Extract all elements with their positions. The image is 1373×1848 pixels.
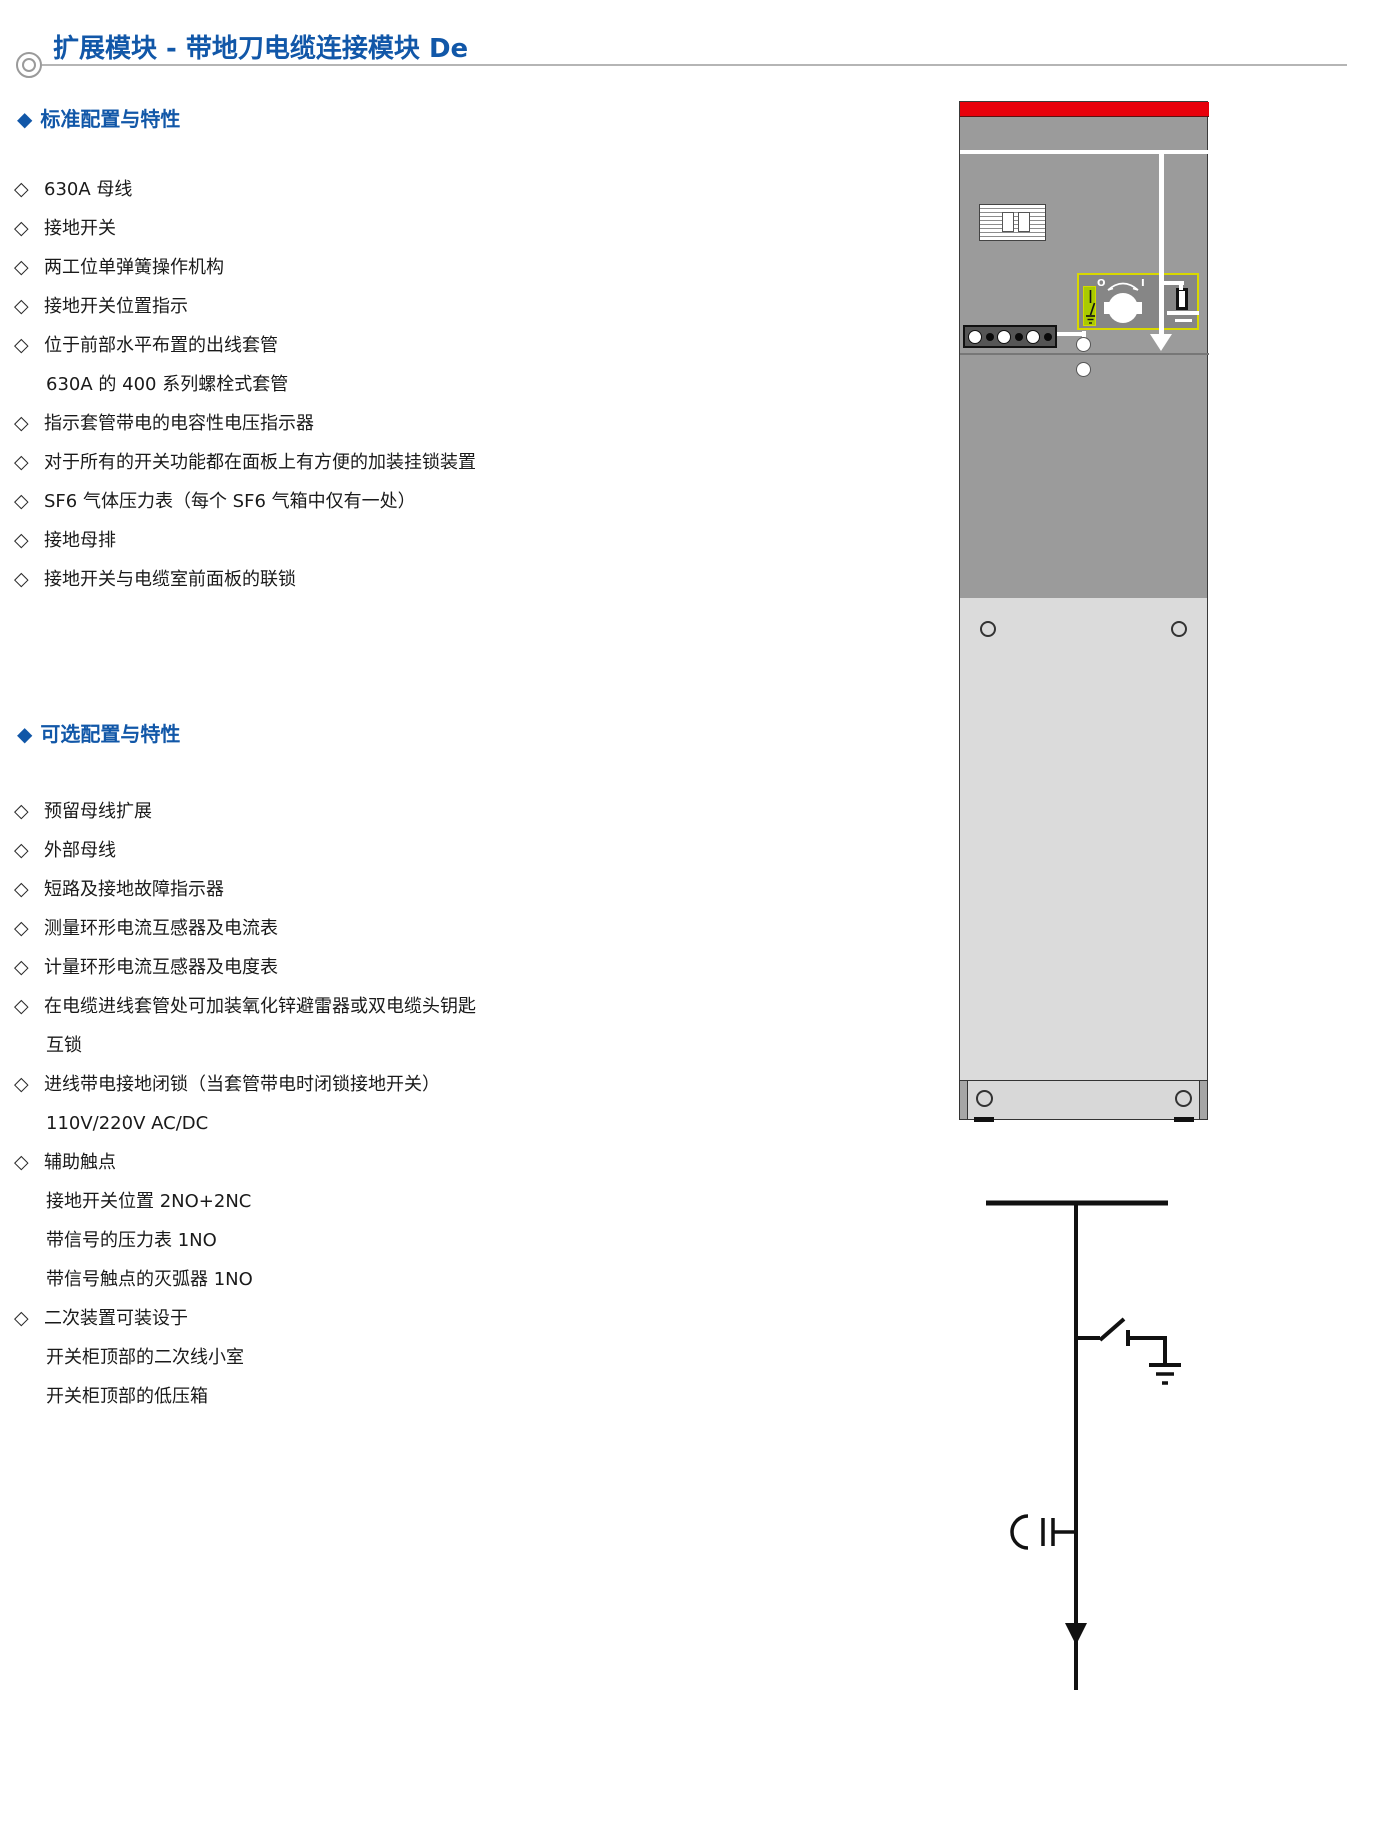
list-item-text: 接地开关位置指示: [44, 296, 188, 317]
list-item-continuation: 带信号的压力表 1NO: [0, 1221, 476, 1260]
list-item-text: 外部母线: [44, 840, 116, 861]
diamond-bullet-icon: ◇: [14, 792, 29, 831]
plinth-hole: [976, 1090, 993, 1107]
list-item-text: 带信号触点的灭弧器 1NO: [46, 1269, 253, 1290]
list-item-continuation: 开关柜顶部的二次线小室: [0, 1338, 476, 1377]
list-item: ◇位于前部水平布置的出线套管: [0, 326, 476, 365]
list-item-text: 在电缆进线套管处可加装氧化锌避雷器或双电缆头钥匙: [44, 996, 476, 1017]
nameplate-diagram-box: [1018, 212, 1030, 232]
section-heading-optional: ◆可选配置与特性: [17, 718, 180, 747]
cabinet-red-band: [960, 102, 1209, 117]
rotation-arrow-icon: [1105, 278, 1141, 292]
list-item: ◇接地开关位置指示: [0, 287, 476, 326]
cable-bushing-symbol: [1176, 288, 1188, 310]
cabinet-foot: [974, 1117, 994, 1122]
earthing-switch-glyph: [1084, 287, 1097, 325]
list-item-text: 对于所有的开关功能都在面板上有方便的加装挂锁装置: [44, 452, 476, 473]
section-heading-standard-text: 标准配置与特性: [40, 107, 180, 131]
nameplate: [979, 204, 1046, 241]
list-item-text: 开关柜顶部的二次线小室: [46, 1347, 244, 1368]
list-item: ◇两工位单弹簧操作机构: [0, 248, 476, 287]
bushing-dot: [1044, 333, 1052, 341]
bushing-dot: [986, 333, 994, 341]
list-item-text: 接地开关与电缆室前面板的联锁: [44, 569, 296, 590]
cabinet-foot: [1174, 1117, 1194, 1122]
plinth-leg: [959, 1080, 968, 1120]
nameplate-diagram-box: [1002, 212, 1014, 232]
list-item: ◇SF6 气体压力表（每个 SF6 气箱中仅有一处）: [0, 482, 476, 521]
plinth-hole: [1175, 1090, 1192, 1107]
diamond-bullet-icon: ◇: [14, 326, 29, 365]
diamond-bullet-icon: ◇: [14, 170, 29, 209]
list-item-text: 接地开关位置 2NO+2NC: [46, 1191, 251, 1212]
door-screw: [980, 621, 996, 637]
cable-bushing-strip: [963, 325, 1057, 348]
earthing-switch-position-indicator: [1083, 286, 1096, 326]
cable-feeder-arrow: [1065, 1623, 1087, 1645]
switchgear-cabinet-illustration: O I: [959, 101, 1208, 1120]
earth-branch-line: [1179, 281, 1183, 290]
title-rule-line: [42, 64, 1347, 66]
list-item-text: 开关柜顶部的低压箱: [46, 1386, 208, 1407]
list-item-text: 测量环形电流互感器及电流表: [44, 918, 278, 939]
list-item-continuation: 接地开关位置 2NO+2NC: [0, 1182, 476, 1221]
cable-compartment-door: [960, 598, 1207, 1081]
list-item: ◇接地开关与电缆室前面板的联锁: [0, 560, 476, 599]
diamond-bullet-icon: ◇: [14, 948, 29, 987]
diamond-bullet-icon: ◇: [14, 209, 29, 248]
busbar-white-line: [960, 150, 1209, 154]
list-item: ◇测量环形电流互感器及电流表: [0, 909, 476, 948]
earthing-switch-symbol: [1076, 1319, 1165, 1363]
list-item-text: 630A 母线: [44, 179, 132, 200]
heading-diamond-icon: ◆: [17, 107, 32, 131]
diamond-bullet-icon: ◇: [14, 404, 29, 443]
list-item-text: 计量环形电流互感器及电度表: [44, 957, 278, 978]
diamond-bullet-icon: ◇: [14, 287, 29, 326]
diamond-bullet-icon: ◇: [14, 1299, 29, 1338]
feeder-arrow-head: [1150, 334, 1172, 351]
section-heading-optional-text: 可选配置与特性: [40, 722, 180, 746]
list-item: ◇对于所有的开关功能都在面板上有方便的加装挂锁装置: [0, 443, 476, 482]
list-item-continuation: 110V/220V AC/DC: [0, 1104, 476, 1143]
earth-symbol: [1149, 1365, 1181, 1383]
list-item: ◇接地开关: [0, 209, 476, 248]
list-item-text: 预留母线扩展: [44, 801, 152, 822]
list-item-continuation: 630A 的 400 系列螺栓式套管: [0, 365, 476, 404]
list-item-text: 接地母排: [44, 530, 116, 551]
knob-on-label: I: [1141, 278, 1145, 289]
earth-symbol-bar: [1175, 319, 1192, 322]
header-circle-decoration: [16, 52, 42, 78]
bushing-circle: [968, 330, 982, 344]
list-item-text: 进线带电接地闭锁（当套管带电时闭锁接地开关）: [44, 1074, 440, 1095]
section-heading-standard: ◆标准配置与特性: [17, 103, 180, 132]
single-line-diagram: [950, 1190, 1210, 1700]
panel-seam-line: [960, 353, 1209, 355]
standard-feature-list: ◇630A 母线 ◇接地开关 ◇两工位单弹簧操作机构 ◇接地开关位置指示 ◇位于…: [0, 170, 476, 599]
list-item: ◇630A 母线: [0, 170, 476, 209]
diamond-bullet-icon: ◇: [14, 1143, 29, 1182]
list-item-text: 指示套管带电的电容性电压指示器: [44, 413, 314, 434]
diamond-bullet-icon: ◇: [14, 909, 29, 948]
list-item-text: 110V/220V AC/DC: [46, 1113, 208, 1134]
cabinet-body: O I: [959, 101, 1208, 1080]
diamond-bullet-icon: ◇: [14, 1065, 29, 1104]
list-item-text: 接地开关: [44, 218, 116, 239]
list-item-text: 二次装置可装设于: [44, 1308, 188, 1329]
heading-diamond-icon: ◆: [17, 722, 32, 746]
list-item: ◇指示套管带电的电容性电压指示器: [0, 404, 476, 443]
list-item-text: 互锁: [46, 1035, 82, 1056]
diamond-bullet-icon: ◇: [14, 248, 29, 287]
list-item: ◇进线带电接地闭锁（当套管带电时闭锁接地开关）: [0, 1065, 476, 1104]
list-item-text: 辅助触点: [44, 1152, 116, 1173]
list-item-text: 630A 的 400 系列螺栓式套管: [46, 374, 288, 395]
diamond-bullet-icon: ◇: [14, 521, 29, 560]
list-item: ◇在电缆进线套管处可加装氧化锌避雷器或双电缆头钥匙: [0, 987, 476, 1026]
page-title: 扩展模块 - 带地刀电缆连接模块 De: [53, 28, 468, 65]
catalog-page: 扩展模块 - 带地刀电缆连接模块 De ◆标准配置与特性 ◇630A 母线 ◇接…: [0, 0, 1373, 1848]
list-item-text: 带信号的压力表 1NO: [46, 1230, 217, 1251]
list-item-text: SF6 气体压力表（每个 SF6 气箱中仅有一处）: [44, 491, 416, 512]
list-item: ◇接地母排: [0, 521, 476, 560]
list-item: ◇辅助触点: [0, 1143, 476, 1182]
list-item: ◇外部母线: [0, 831, 476, 870]
list-item-text: 短路及接地故障指示器: [44, 879, 224, 900]
optional-feature-list: ◇预留母线扩展 ◇外部母线 ◇短路及接地故障指示器 ◇测量环形电流互感器及电流表…: [0, 792, 476, 1416]
diamond-bullet-icon: ◇: [14, 870, 29, 909]
list-item: ◇短路及接地故障指示器: [0, 870, 476, 909]
list-item: ◇预留母线扩展: [0, 792, 476, 831]
capacitive-voltage-indicator-symbol: [1012, 1516, 1076, 1548]
earth-symbol-bar: [1167, 311, 1199, 315]
bushing-dot: [1015, 333, 1023, 341]
list-item: ◇计量环形电流互感器及电度表: [0, 948, 476, 987]
connector-white-line: [1057, 332, 1085, 336]
diamond-bullet-icon: ◇: [14, 987, 29, 1026]
bushing-circle: [1026, 330, 1040, 344]
feeder-white-line: [1159, 152, 1164, 336]
knob-circle: [1108, 293, 1138, 323]
diamond-bullet-icon: ◇: [14, 560, 29, 599]
list-item-text: 两工位单弹簧操作机构: [44, 257, 224, 278]
cabinet-plinth: [959, 1080, 1208, 1120]
diamond-bullet-icon: ◇: [14, 443, 29, 482]
diamond-bullet-icon: ◇: [14, 831, 29, 870]
list-item-continuation: 带信号触点的灭弧器 1NO: [0, 1260, 476, 1299]
list-item-text: 位于前部水平布置的出线套管: [44, 335, 278, 356]
list-item-continuation: 互锁: [0, 1026, 476, 1065]
list-item: ◇二次装置可装设于: [0, 1299, 476, 1338]
diamond-bullet-icon: ◇: [14, 482, 29, 521]
bushing-circle: [997, 330, 1011, 344]
pushbutton: [1076, 337, 1091, 352]
list-item-continuation: 开关柜顶部的低压箱: [0, 1377, 476, 1416]
pushbutton: [1076, 362, 1091, 377]
header-circle-inner: [22, 58, 36, 72]
plinth-leg: [1199, 1080, 1208, 1120]
door-screw: [1171, 621, 1187, 637]
rotary-knob: [1106, 291, 1140, 325]
